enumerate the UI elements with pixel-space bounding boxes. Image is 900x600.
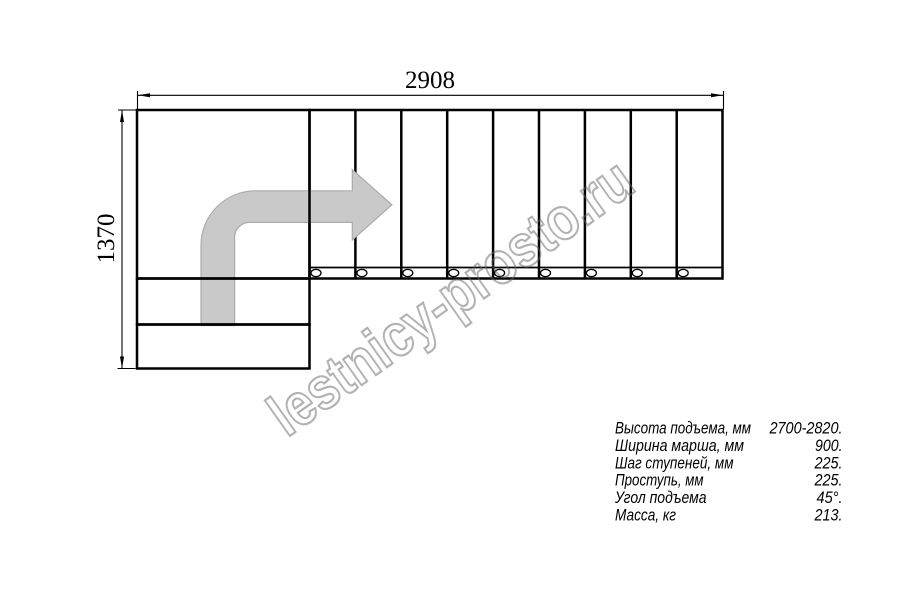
svg-text:Высота подъема, мм: Высота подъема, мм bbox=[615, 420, 751, 438]
svg-text:Угол подъема: Угол подъема bbox=[614, 489, 706, 507]
svg-text:1370: 1370 bbox=[93, 214, 120, 264]
svg-text:Шаг ступеней, мм: Шаг ступеней, мм bbox=[615, 454, 734, 472]
svg-text:225.: 225. bbox=[814, 472, 843, 490]
svg-text:45°.: 45°. bbox=[817, 489, 843, 507]
svg-text:2908: 2908 bbox=[405, 67, 455, 94]
svg-text:225.: 225. bbox=[814, 454, 843, 472]
svg-text:Проступь, мм: Проступь, мм bbox=[615, 472, 704, 490]
svg-text:Масса, кг: Масса, кг bbox=[615, 507, 676, 525]
svg-text:213.: 213. bbox=[814, 507, 843, 525]
svg-text:900.: 900. bbox=[815, 437, 843, 455]
svg-text:Ширина марша, мм: Ширина марша, мм bbox=[615, 437, 744, 455]
svg-text:2700-2820.: 2700-2820. bbox=[769, 420, 843, 438]
